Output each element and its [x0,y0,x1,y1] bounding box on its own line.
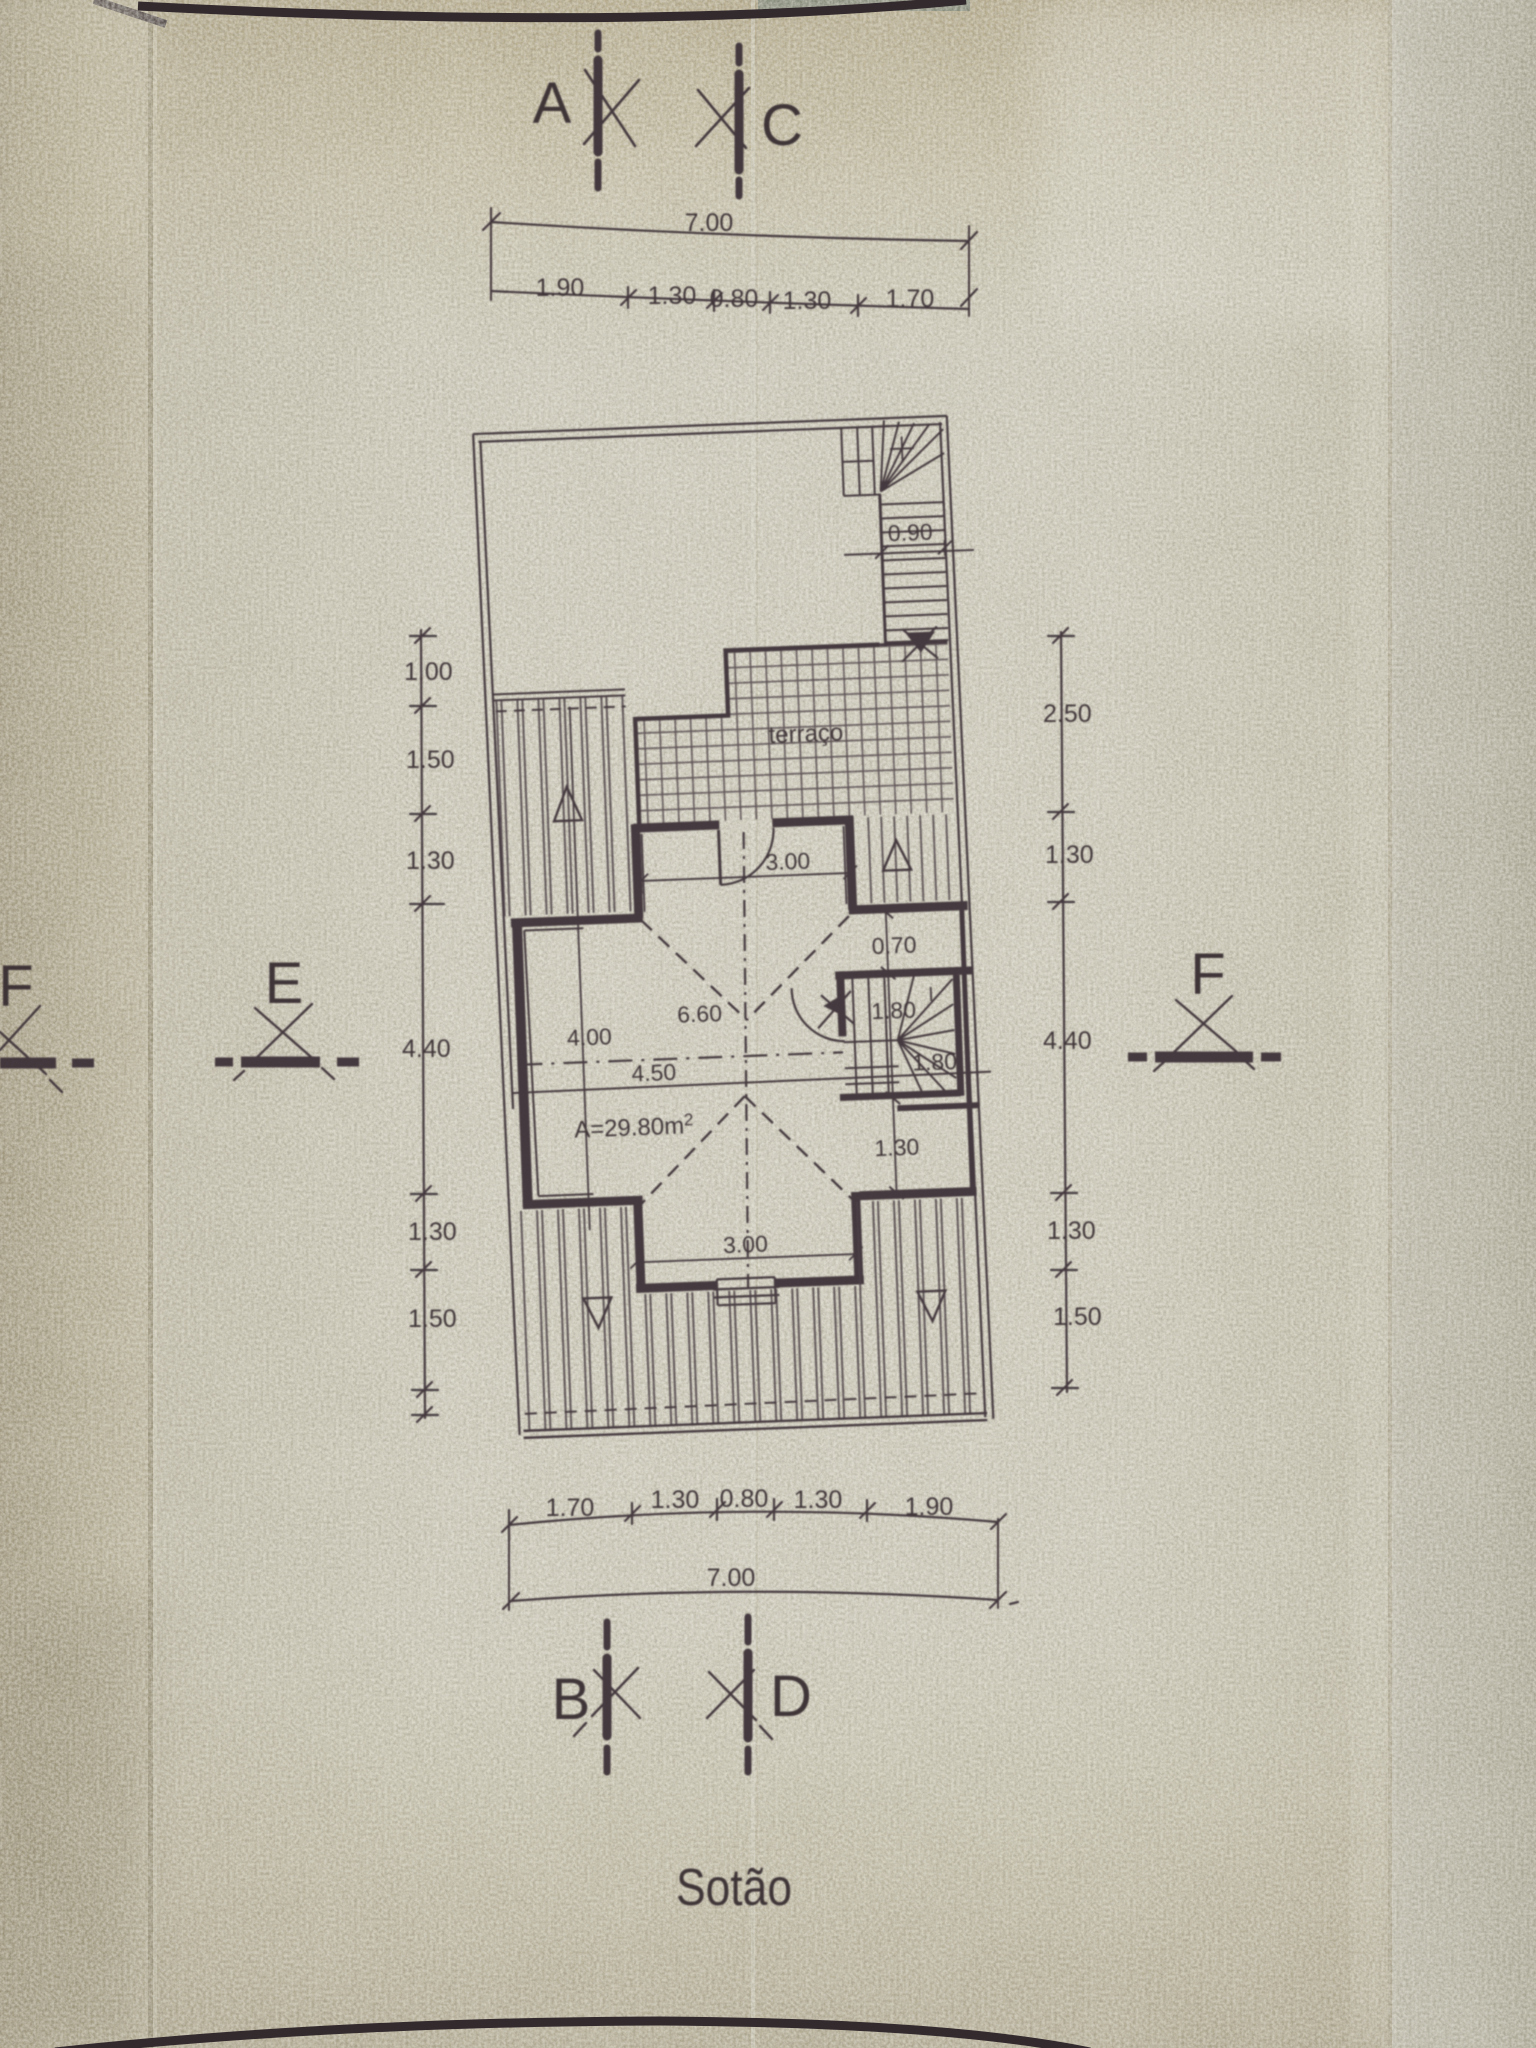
svg-text:2.50: 2.50 [1043,700,1092,728]
svg-text:1.30: 1.30 [648,282,697,310]
svg-text:4.40: 4.40 [402,1035,451,1063]
svg-text:1.30: 1.30 [1045,841,1094,869]
svg-text:F: F [1190,942,1225,1007]
svg-text:7.00: 7.00 [685,209,734,237]
svg-text:0.80: 0.80 [710,285,759,313]
svg-text:1.30: 1.30 [1047,1217,1096,1245]
svg-text:1.00: 1.00 [404,658,453,686]
svg-text:B: B [552,1667,591,1732]
svg-text:1.90: 1.90 [905,1493,954,1521]
svg-text:7.00: 7.00 [707,1564,756,1592]
svg-text:3.00: 3.00 [723,1230,769,1258]
svg-text:0.90: 0.90 [887,519,933,547]
svg-text:1.80: 1.80 [871,997,917,1025]
svg-text:1.70: 1.70 [546,1494,595,1522]
svg-text:1.80: 1.80 [912,1048,958,1076]
svg-text:0.80: 0.80 [720,1485,769,1513]
svg-text:6.60: 6.60 [677,1000,723,1028]
svg-text:A=29.80m2: A=29.80m2 [574,1110,695,1144]
svg-text:1.70: 1.70 [886,285,935,313]
svg-text:A: A [533,71,572,136]
svg-text:4.40: 4.40 [1043,1027,1092,1055]
svg-text:E: E [265,951,304,1016]
svg-text:C: C [761,93,803,158]
svg-text:1.90: 1.90 [536,274,585,302]
svg-text:Sotão: Sotão [676,1859,792,1917]
svg-text:4.00: 4.00 [567,1023,613,1051]
svg-text:1.30: 1.30 [408,1218,457,1246]
svg-text:1.30: 1.30 [794,1486,843,1514]
svg-text:1.30: 1.30 [874,1133,920,1161]
svg-text:F: F [0,954,34,1019]
svg-text:1.50: 1.50 [406,746,455,774]
svg-text:D: D [770,1664,812,1729]
svg-text:0.70: 0.70 [871,931,917,959]
svg-text:1.50: 1.50 [408,1305,457,1333]
svg-text:1.30: 1.30 [651,1486,700,1514]
svg-text:1.30: 1.30 [406,847,455,875]
svg-text:terraço: terraço [768,719,844,749]
svg-text:1.50: 1.50 [1053,1303,1102,1331]
svg-text:4.50: 4.50 [631,1059,677,1087]
svg-text:3.00: 3.00 [765,847,811,875]
svg-text:1.30: 1.30 [783,287,832,315]
